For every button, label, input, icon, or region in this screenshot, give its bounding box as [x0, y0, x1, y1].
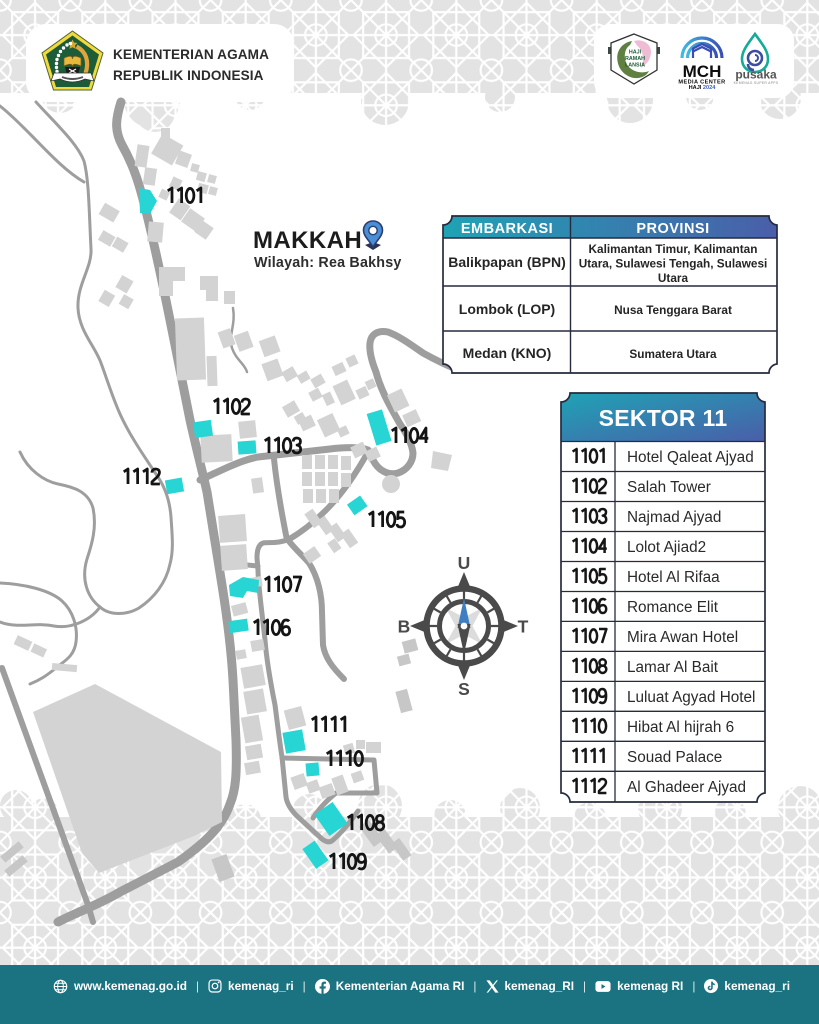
svg-text:PROVINSI: PROVINSI: [636, 221, 709, 237]
svg-text:Utara, Sulawesi Tengah, Sulawe: Utara, Sulawesi Tengah, Sulawesi: [579, 257, 768, 271]
svg-text:Lamar Al Bait: Lamar Al Bait: [627, 659, 719, 676]
svg-text:Hibat Al hijrah 6: Hibat Al hijrah 6: [627, 719, 734, 736]
svg-text:Medan (KNO): Medan (KNO): [463, 345, 552, 361]
svg-text:Lolot Ajiad2: Lolot Ajiad2: [627, 539, 706, 556]
svg-text:U: U: [458, 553, 471, 573]
svg-text:Al Ghadeer Ajyad: Al Ghadeer Ajyad: [627, 779, 746, 796]
svg-text:Sumatera Utara: Sumatera Utara: [629, 347, 717, 361]
svg-text:SEKTOR 11: SEKTOR 11: [599, 405, 728, 431]
svg-text:S: S: [458, 679, 470, 699]
svg-text:Hotel Qaleat Ajyad: Hotel Qaleat Ajyad: [627, 449, 754, 466]
svg-text:Hotel Al Rifaa: Hotel Al Rifaa: [627, 569, 720, 586]
svg-text:Utara: Utara: [658, 271, 689, 285]
svg-text:HAJI: HAJI: [629, 50, 642, 56]
svg-text:HAJI 2024: HAJI 2024: [689, 85, 717, 89]
svg-text:Nusa Tenggara Barat: Nusa Tenggara Barat: [614, 303, 732, 317]
svg-text:T: T: [518, 617, 529, 637]
svg-text:Balikpapan (BPN): Balikpapan (BPN): [448, 254, 565, 270]
svg-text:Kalimantan Timur, Kalimantan: Kalimantan Timur, Kalimantan: [589, 242, 758, 256]
svg-text:Najmad Ajyad: Najmad Ajyad: [627, 509, 721, 526]
svg-text:KEMENAG SUPER APPS: KEMENAG SUPER APPS: [734, 81, 779, 85]
svg-text:Luluat Agyad Hotel: Luluat Agyad Hotel: [627, 689, 755, 706]
svg-text:Souad Palace: Souad Palace: [627, 749, 722, 766]
svg-text:Salah Tower: Salah Tower: [627, 479, 711, 496]
svg-text:Romance Elit: Romance Elit: [627, 599, 719, 616]
svg-text:Lombok (LOP): Lombok (LOP): [459, 301, 555, 317]
svg-text:EMBARKASI: EMBARKASI: [461, 221, 553, 237]
svg-text:MCH: MCH: [683, 62, 722, 81]
svg-text:RAMAH: RAMAH: [625, 56, 645, 62]
svg-text:B: B: [398, 617, 411, 637]
svg-text:Mira Awan Hotel: Mira Awan Hotel: [627, 629, 738, 646]
svg-text:LANSIA: LANSIA: [625, 63, 645, 69]
svg-text:pusaka: pusaka: [735, 68, 777, 82]
